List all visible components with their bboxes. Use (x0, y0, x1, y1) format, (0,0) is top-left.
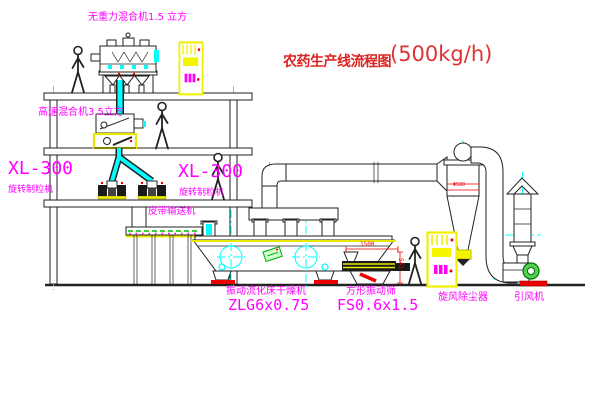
person-floor2 (156, 103, 168, 149)
label-granulator-mid-name: 旋转制粒机 (179, 189, 224, 198)
high-speed-mixer (94, 114, 146, 148)
dim-cyclone-marking: Φ500 (453, 183, 465, 188)
label-granulator-left-name: 旋转制粒机 (8, 186, 53, 195)
diagram-title: 农药生产线流程图 (283, 51, 391, 71)
label-sieve-model: FS0.6x1.5 (337, 298, 418, 313)
flow-diagram-screenshot: 农药生产线流程图 (500kg/h) 无重力混合机1.5 立方 高速混合机3.5… (0, 0, 600, 403)
granulator-right (138, 181, 166, 199)
label-granulator-mid-model: XL-300 (178, 163, 243, 181)
granulator-left (98, 181, 126, 199)
belt-conveyor (126, 207, 204, 284)
label-granulator-left-model: XL-300 (8, 160, 73, 178)
diagram-capacity: (500kg/h) (390, 42, 492, 66)
label-belt-conveyor: 皮带输送机 (148, 207, 196, 217)
label-fan: 引风机 (514, 293, 544, 303)
label-cyclone: 旋风除尘器 (438, 293, 488, 303)
exhaust-duct (262, 162, 458, 214)
label-floor2-mixer: 高速混合机3.5立方 (38, 108, 124, 118)
dim-sieve-height: 541 (397, 258, 403, 269)
person-ground (409, 238, 421, 284)
dim-sieve-length: 1500 (360, 242, 374, 248)
label-dryer-model: ZLG6x0.75 (228, 298, 309, 313)
control-cabinet-ground (428, 233, 457, 287)
gravity-free-mixer (91, 33, 159, 93)
label-top-mixer: 无重力混合机1.5 立方 (88, 13, 187, 23)
person-roof (72, 47, 84, 93)
control-cabinet-top (179, 42, 202, 94)
